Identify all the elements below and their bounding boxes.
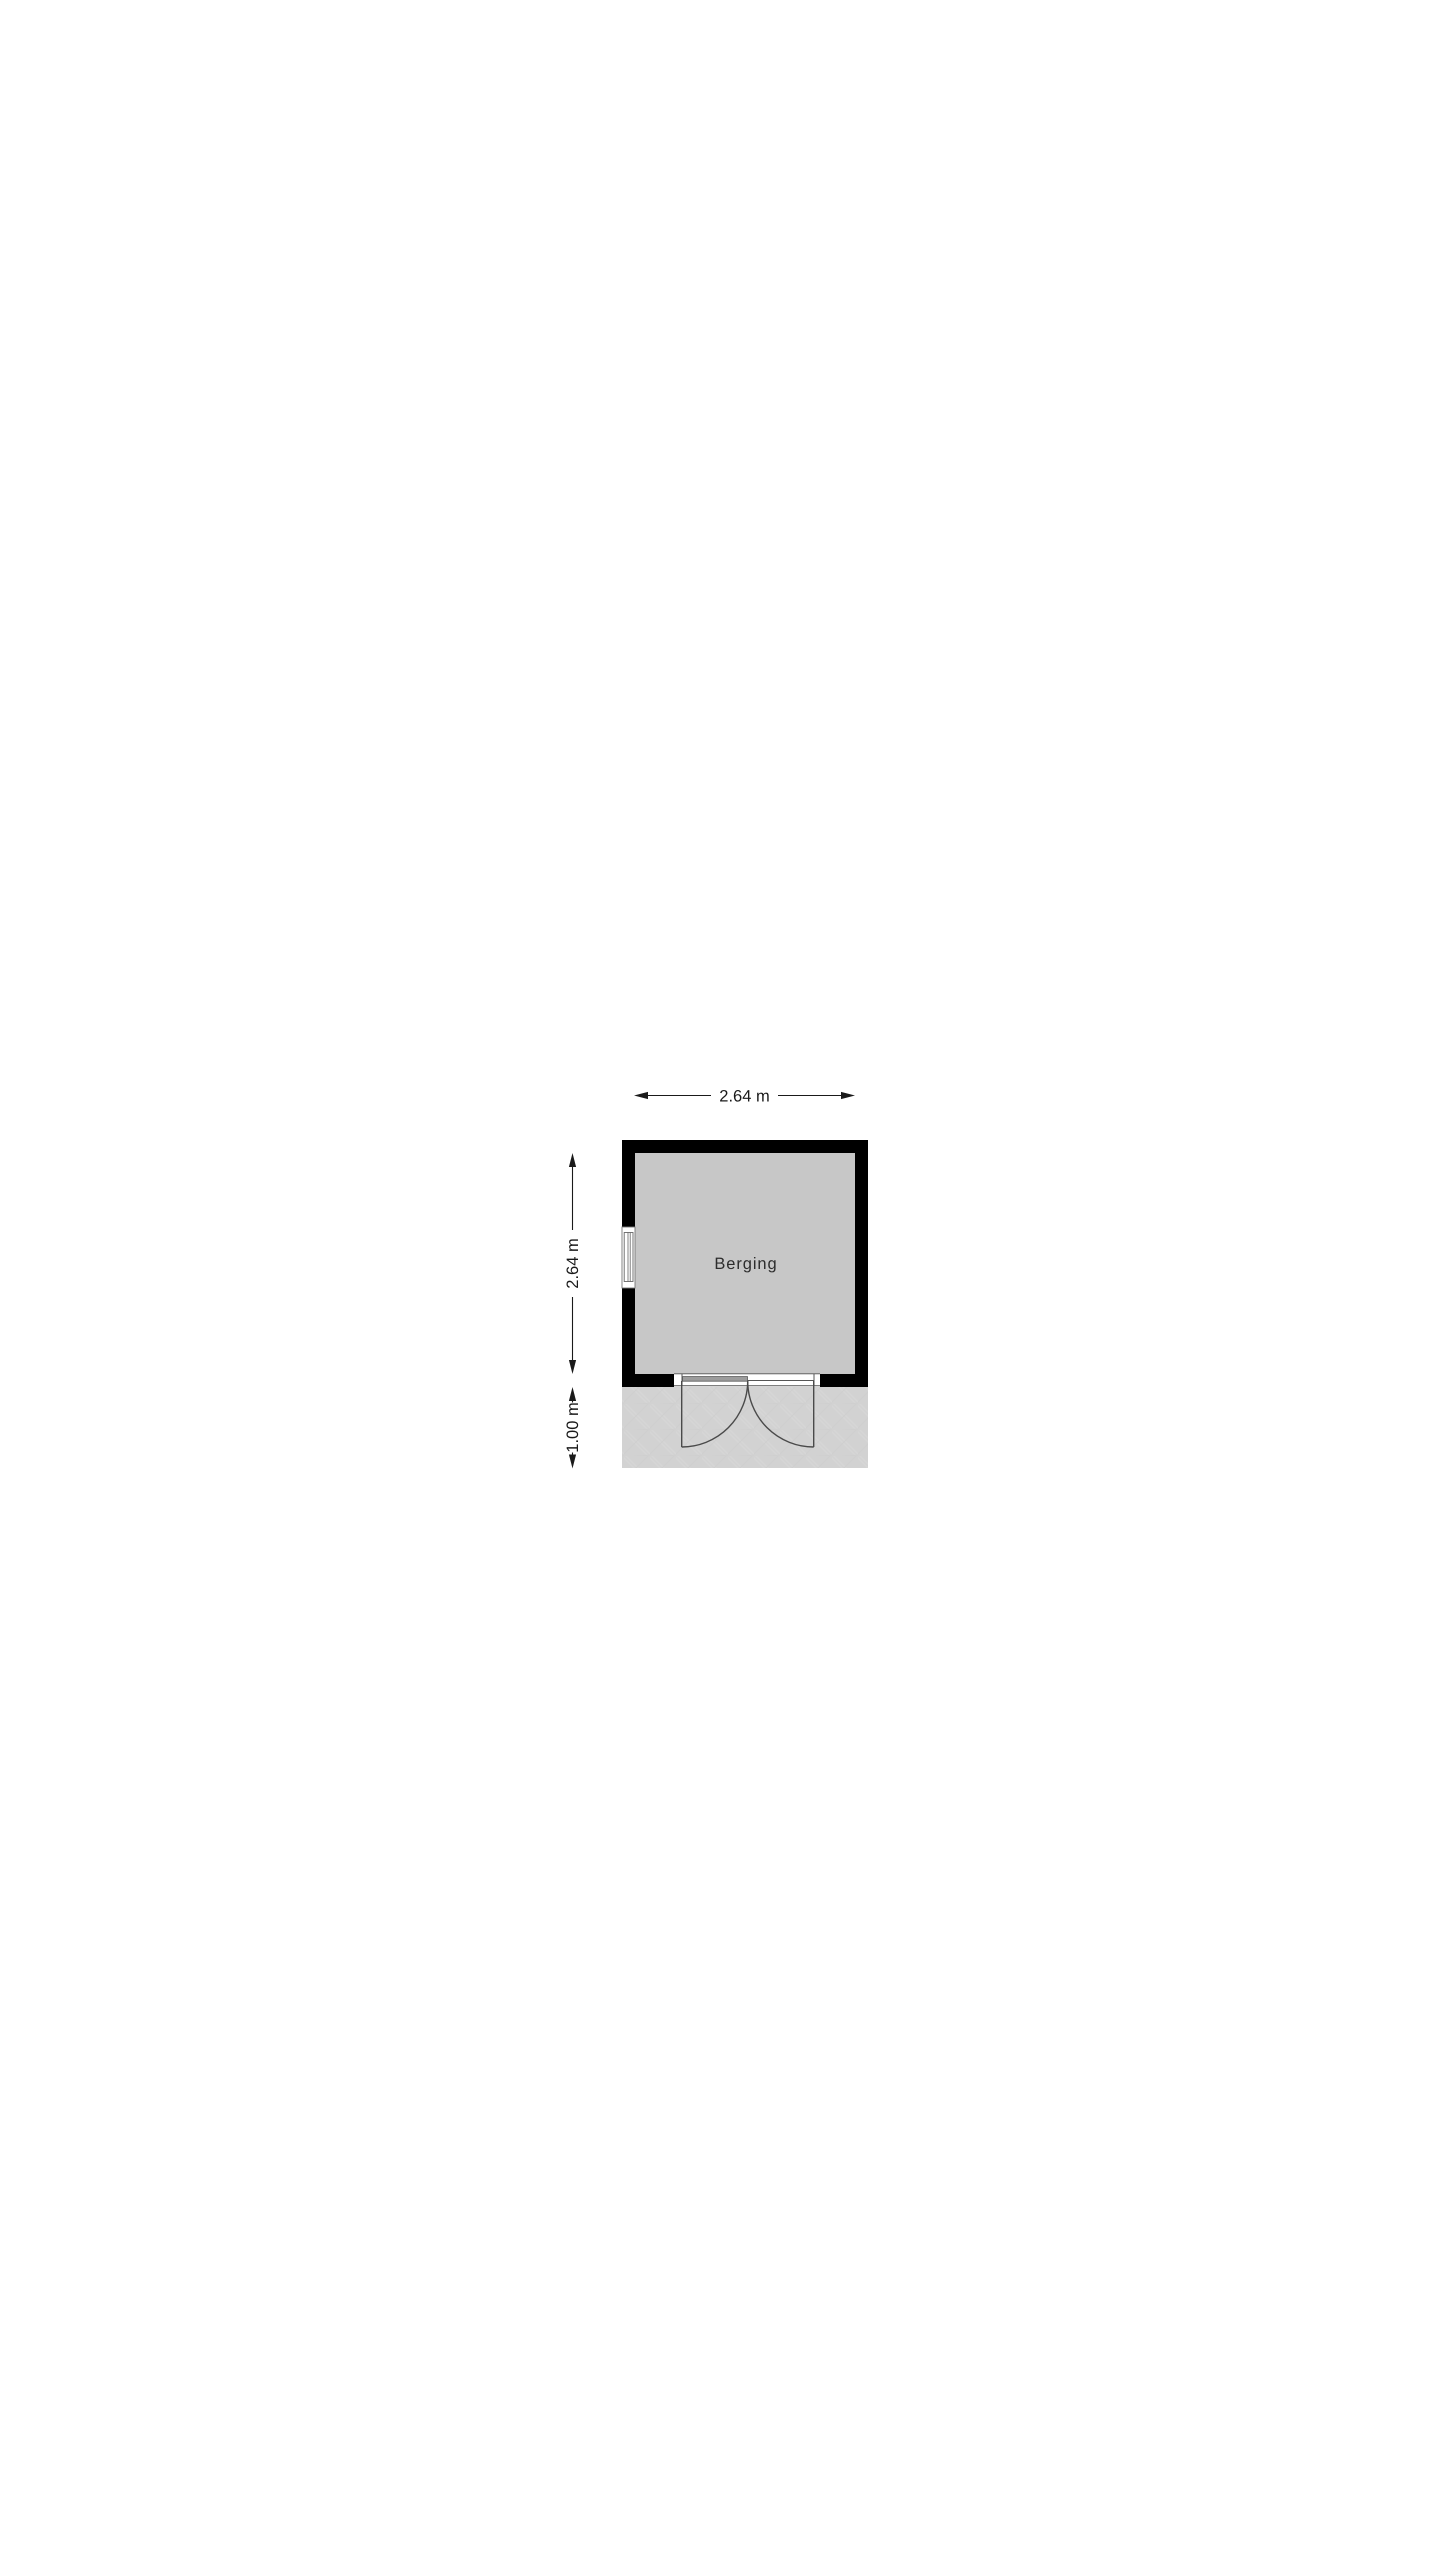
svg-text:Berging: Berging <box>714 1255 777 1273</box>
svg-text:2.64 m: 2.64 m <box>564 1238 582 1288</box>
svg-text:1.00 m: 1.00 m <box>564 1402 582 1452</box>
svg-text:2.64 m: 2.64 m <box>719 1088 769 1106</box>
